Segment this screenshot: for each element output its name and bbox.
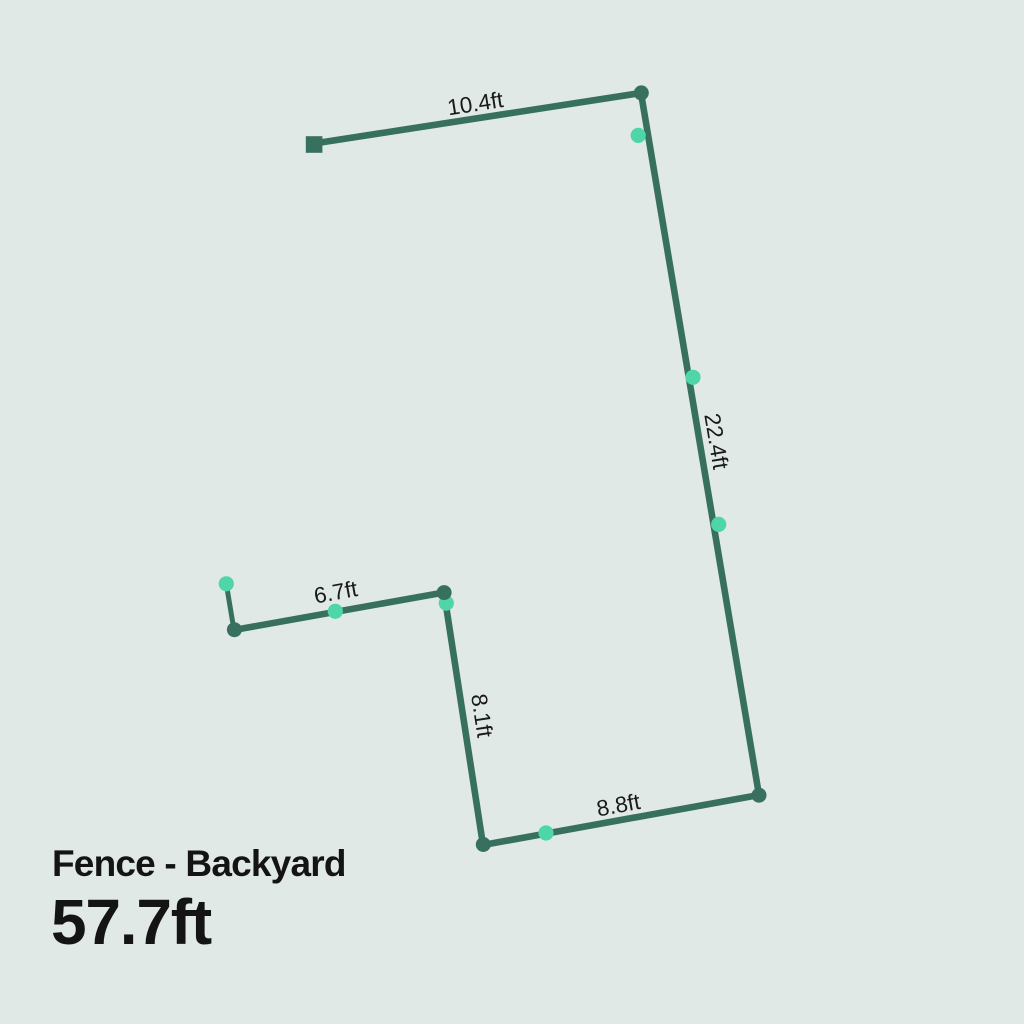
svg-text:6.7ft: 6.7ft	[312, 576, 360, 608]
svg-text:8.1ft: 8.1ft	[466, 692, 498, 740]
